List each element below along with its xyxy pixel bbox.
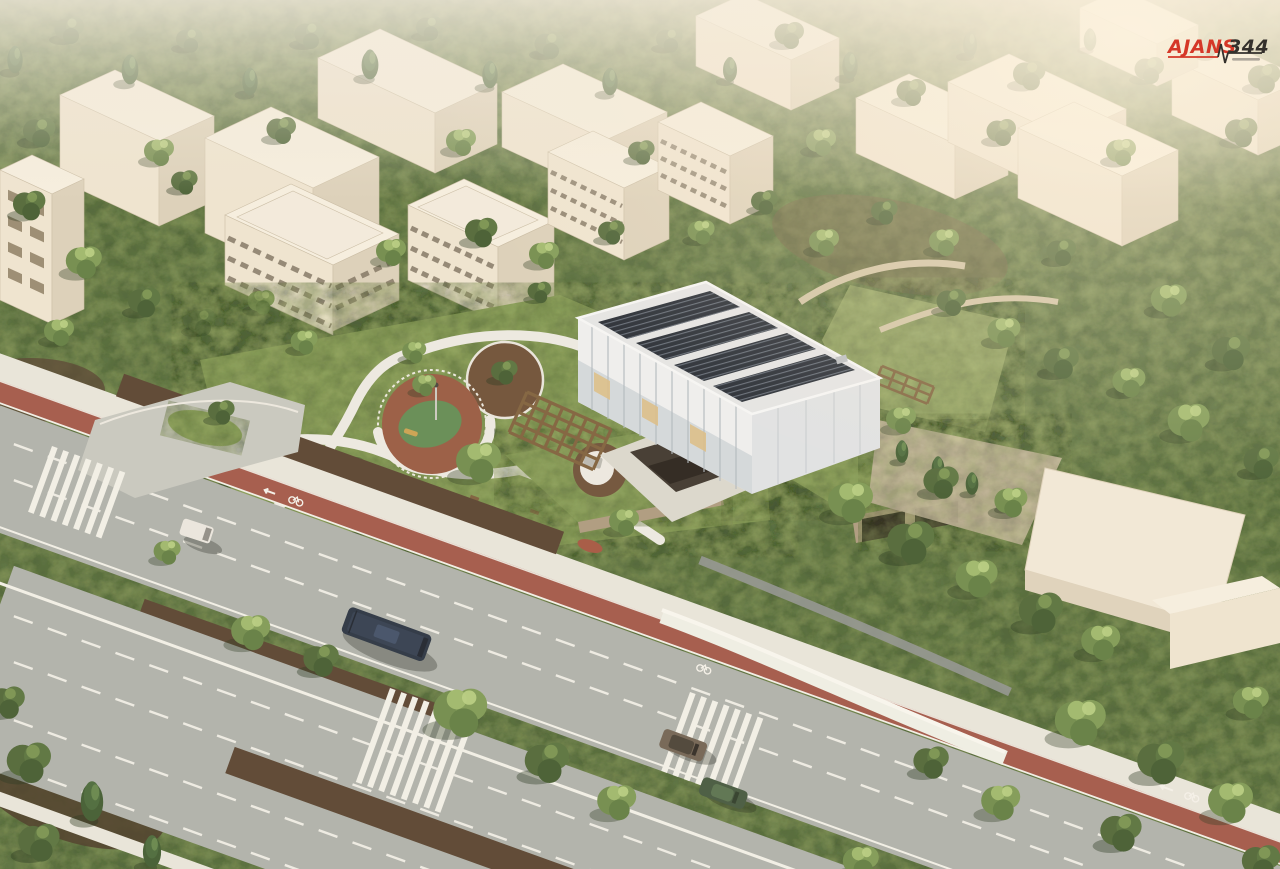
scene-render: AJANS 344 bbox=[0, 0, 1280, 869]
render-canvas: AJANS 344 bbox=[0, 0, 1280, 869]
logo-brand-text: AJANS bbox=[1166, 36, 1237, 58]
warm-tint bbox=[0, 0, 1280, 869]
atmosphere bbox=[0, 0, 1280, 869]
logo-number-text: 344 bbox=[1228, 36, 1269, 58]
logo-tagline-bar bbox=[1232, 58, 1260, 61]
